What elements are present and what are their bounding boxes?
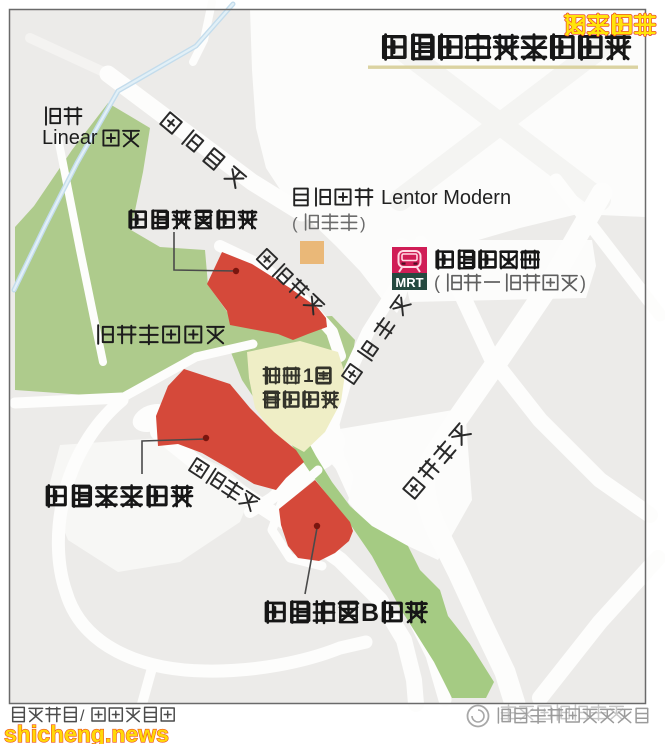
svg-text:1: 1 (303, 366, 314, 387)
svg-text:(: ( (292, 214, 298, 233)
svg-text:B: B (361, 599, 379, 627)
svg-text:(: ( (434, 273, 440, 293)
svg-text:Linear: Linear (42, 127, 98, 149)
svg-text:MRT: MRT (395, 275, 423, 290)
svg-text:Lentor Modern: Lentor Modern (381, 187, 511, 209)
svg-text:): ) (360, 214, 366, 233)
svg-text:): ) (580, 273, 586, 293)
svg-text:shicheng.news: shicheng.news (4, 721, 169, 744)
